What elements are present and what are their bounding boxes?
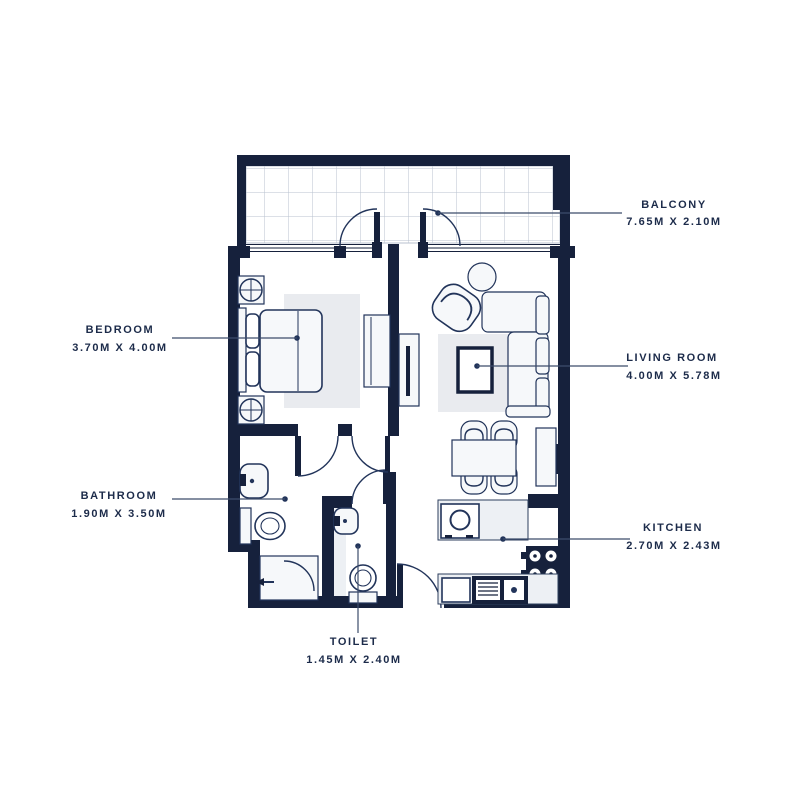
shower-icon <box>256 556 318 600</box>
washing-machine-icon <box>441 504 479 538</box>
bathroom-door <box>295 436 338 476</box>
bedroom-size: 3.70M X 4.00M <box>72 342 167 354</box>
living-room-area <box>399 263 556 494</box>
balcony-size: 7.65M X 2.10M <box>626 216 721 228</box>
entrance-door-arc <box>397 564 441 608</box>
bedroom-door <box>352 436 390 472</box>
window-sill <box>246 245 560 252</box>
living-room-label: LIVING ROOM <box>626 352 718 364</box>
wall <box>560 210 570 252</box>
kitchen-sink-icon <box>438 574 558 604</box>
wardrobe-icon <box>364 315 390 387</box>
bedroom-door-arc <box>352 436 388 472</box>
bedroom-label: BEDROOM <box>86 324 155 336</box>
bathroom-label: BATHROOM <box>81 490 158 502</box>
nightstand-icon <box>238 276 264 304</box>
coffee-table-icon <box>458 348 492 392</box>
balcony-tile-floor <box>246 166 560 243</box>
wall <box>237 155 246 252</box>
bedroom-area <box>238 276 390 424</box>
bathroom-size: 1.90M X 3.50M <box>71 508 166 520</box>
kitchen-size: 2.70M X 2.43M <box>626 540 721 552</box>
balcony-area <box>237 155 570 252</box>
side-table-icon <box>468 263 496 291</box>
toilet-area <box>334 470 388 603</box>
toilet-icon <box>240 508 285 544</box>
nightstand-icon <box>238 396 264 424</box>
living-room-size: 4.00M X 5.78M <box>626 370 721 382</box>
balcony-label: BALCONY <box>641 199 707 211</box>
dining-table-icon <box>452 440 516 476</box>
bathroom-door-arc <box>298 436 338 476</box>
pillow-icon <box>246 314 259 348</box>
bed-icon <box>238 308 322 392</box>
toilet-label: TOILET <box>330 636 379 648</box>
kitchen-area <box>438 500 558 604</box>
cabinet-icon <box>536 428 556 486</box>
wall <box>553 155 570 210</box>
pillow-icon <box>246 352 259 386</box>
wall <box>237 155 570 166</box>
wc-door <box>352 470 388 504</box>
wc-sink-icon <box>334 508 358 534</box>
tv-icon <box>406 346 410 396</box>
kitchen-label: KITCHEN <box>643 522 703 534</box>
dining-set-icon <box>452 421 517 494</box>
toilet-size: 1.45M X 2.40M <box>306 654 401 666</box>
floor-plan-canvas: BALCONY 7.65M X 2.10M BEDROOM 3.70M X 4.… <box>0 0 800 800</box>
tv-console-icon <box>399 334 419 406</box>
bathroom-sink-icon <box>240 464 268 498</box>
entrance-door <box>397 564 441 608</box>
floor-plan-page: BALCONY 7.65M X 2.10M BEDROOM 3.70M X 4.… <box>0 0 800 800</box>
wc-toilet-icon <box>349 565 377 603</box>
wc-door-arc <box>352 470 386 504</box>
